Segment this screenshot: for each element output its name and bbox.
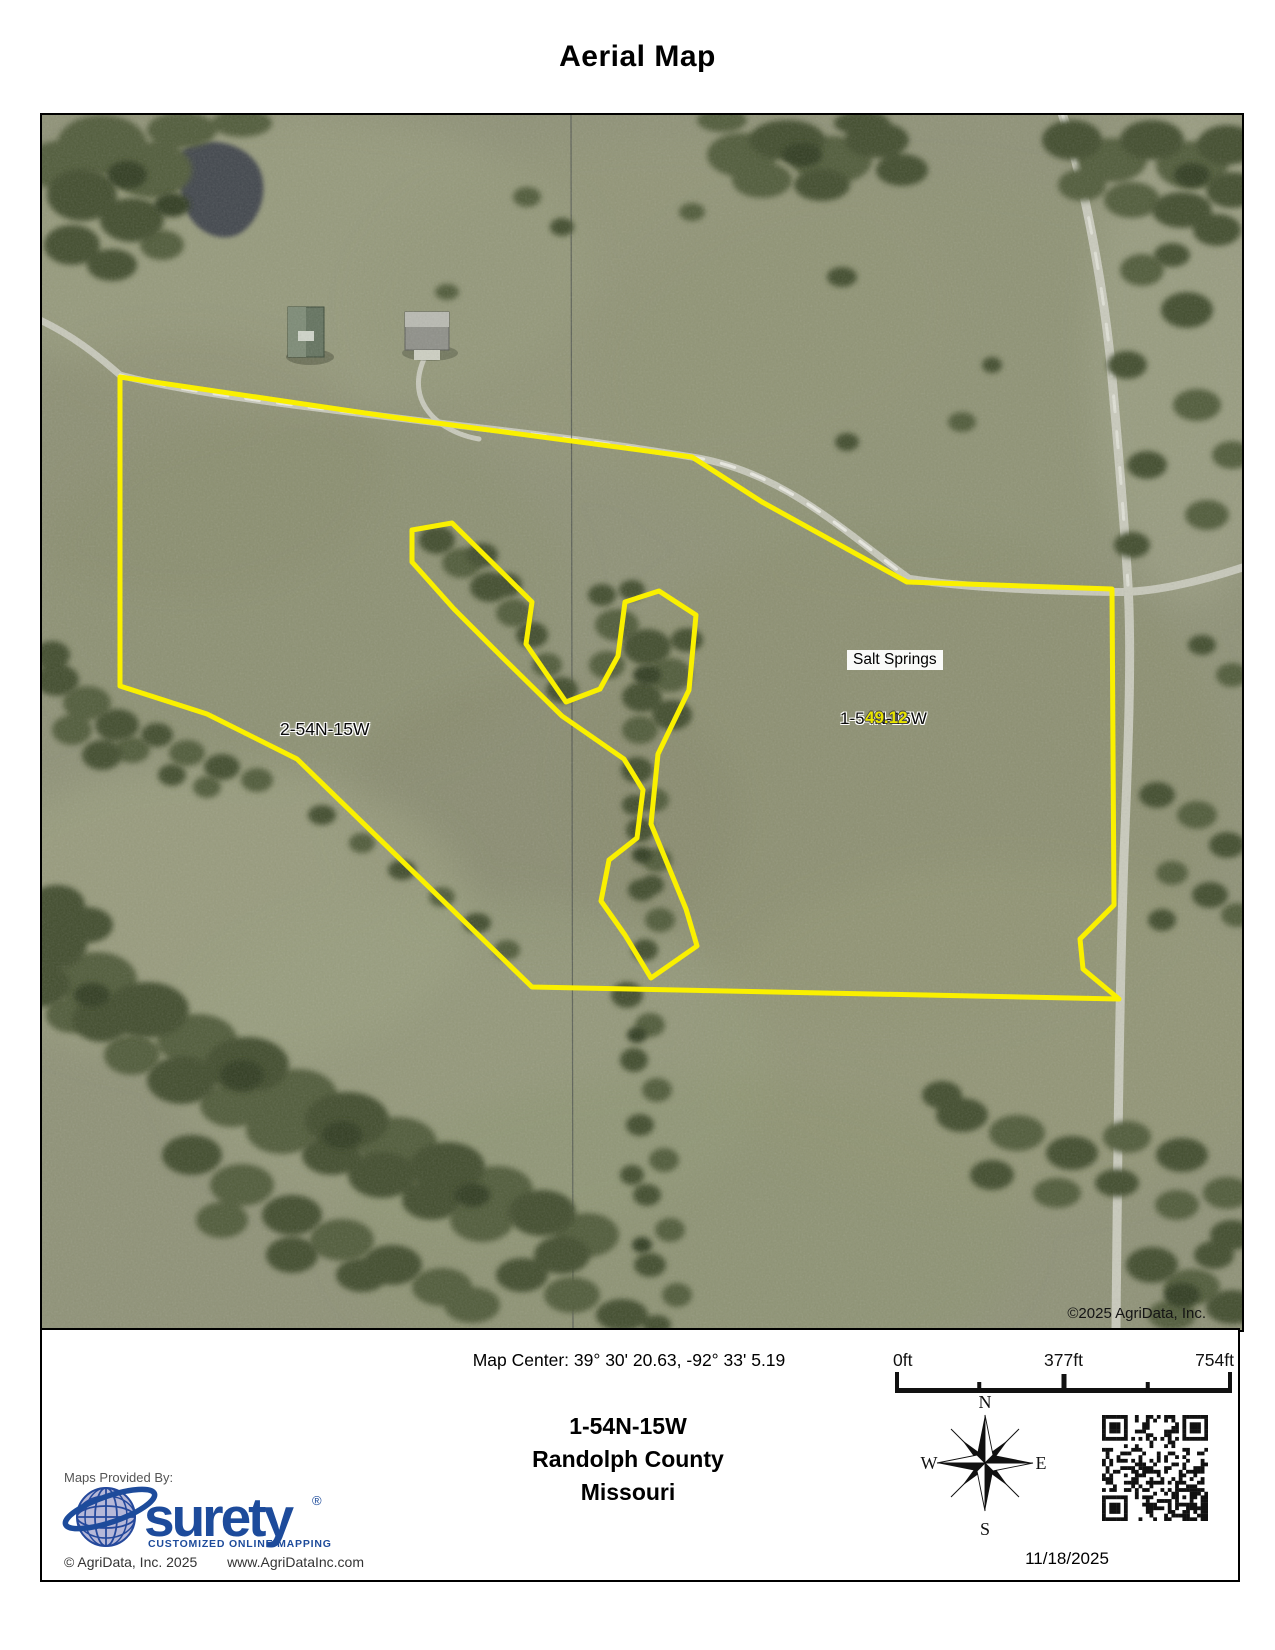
aerial-imagery	[42, 115, 1242, 1330]
registered-mark: ®	[312, 1493, 322, 1508]
scale-label-end: 754ft	[1195, 1350, 1234, 1370]
print-date: 11/18/2025	[967, 1549, 1167, 1569]
footer-panel: Map Center: 39° 30' 20.63, -92° 33' 5.19…	[40, 1328, 1240, 1582]
surety-logo-block: Maps Provided By: surety ® CUSTOMIZED ON…	[60, 1470, 390, 1570]
compass-rose: N S W E	[920, 1392, 1050, 1538]
aerial-map: 2-54N-15W Salt Springs 1-54N-15W 49.12 ©…	[40, 113, 1244, 1332]
section-township-range: 1-54N-15W	[278, 1410, 978, 1443]
agridata-credits-row: © AgriData, Inc. 2025 www.AgriDataInc.co…	[64, 1554, 364, 1570]
map-copyright-overlay: ©2025 AgriData, Inc.	[1067, 1305, 1206, 1322]
scale-label-mid: 377ft	[1044, 1350, 1083, 1370]
surety-tagline: CUSTOMIZED ONLINE MAPPING	[148, 1538, 332, 1549]
compass-north-label: N	[979, 1392, 992, 1412]
parcel-label: 1-54N-15W 49.12	[840, 709, 927, 731]
agridata-website: www.AgriDataInc.com	[227, 1554, 364, 1570]
agridata-copyright: © AgriData, Inc. 2025	[64, 1554, 197, 1570]
surety-logo: surety ® CUSTOMIZED ONLINE MAPPING	[60, 1485, 380, 1549]
compass-south-label: S	[980, 1519, 990, 1538]
compass-east-label: E	[1036, 1453, 1047, 1473]
parcel-acreage-label: 49.12	[865, 708, 908, 728]
compass-west-label: W	[921, 1453, 938, 1473]
scale-label-start: 0ft	[893, 1350, 913, 1370]
maps-provided-by-label: Maps Provided By:	[64, 1470, 390, 1485]
section-label-left: 2-54N-15W	[280, 719, 369, 740]
page-title: Aerial Map	[0, 40, 1275, 74]
qr-code	[1102, 1415, 1208, 1521]
map-center-coordinates: Map Center: 39° 30' 20.63, -92° 33' 5.19	[279, 1350, 979, 1371]
compass-star	[937, 1415, 1033, 1511]
place-name-label: Salt Springs	[847, 650, 943, 670]
